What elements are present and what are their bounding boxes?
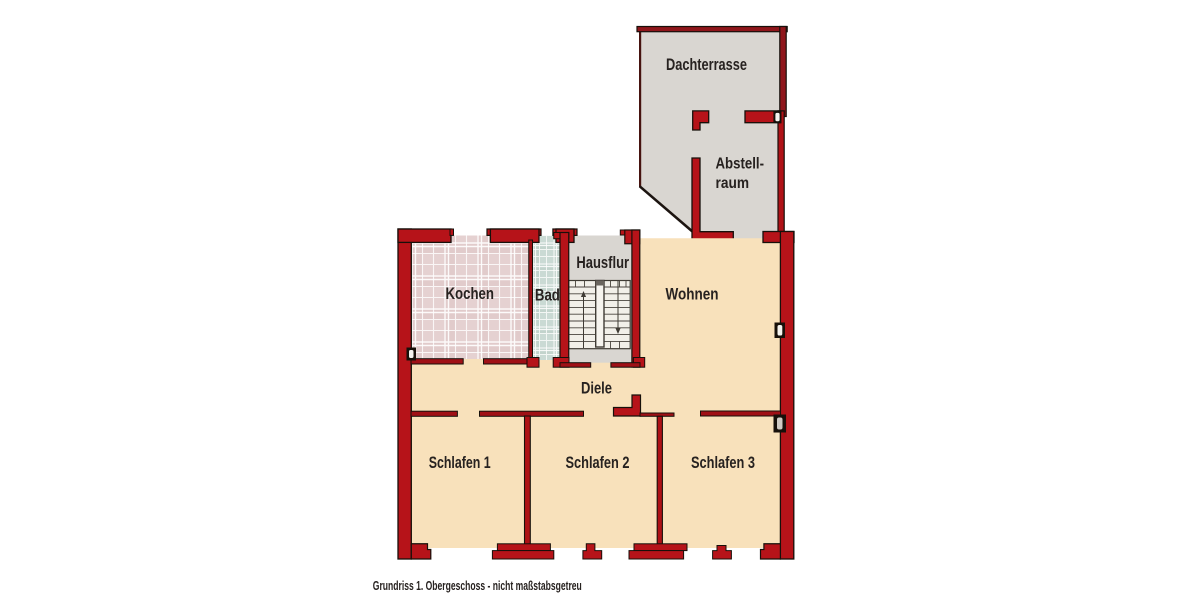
svg-text:raum: raum (716, 175, 750, 192)
svg-text:Kochen: Kochen (446, 285, 495, 303)
svg-text:Wohnen: Wohnen (666, 286, 719, 304)
svg-text:Schlafen 1: Schlafen 1 (429, 454, 491, 472)
svg-text:Abstell-: Abstell- (716, 156, 765, 173)
svg-text:Schlafen 3: Schlafen 3 (691, 454, 755, 472)
svg-text:Bad: Bad (535, 287, 560, 305)
svg-text:Hausflur: Hausflur (576, 254, 629, 272)
svg-text:Grundriss 1. Obergeschoss - ni: Grundriss 1. Obergeschoss - nicht maßsta… (373, 578, 582, 593)
svg-text:Schlafen 2: Schlafen 2 (566, 454, 630, 472)
svg-text:Diele: Diele (581, 380, 612, 398)
svg-text:Dachterrasse: Dachterrasse (666, 56, 747, 74)
